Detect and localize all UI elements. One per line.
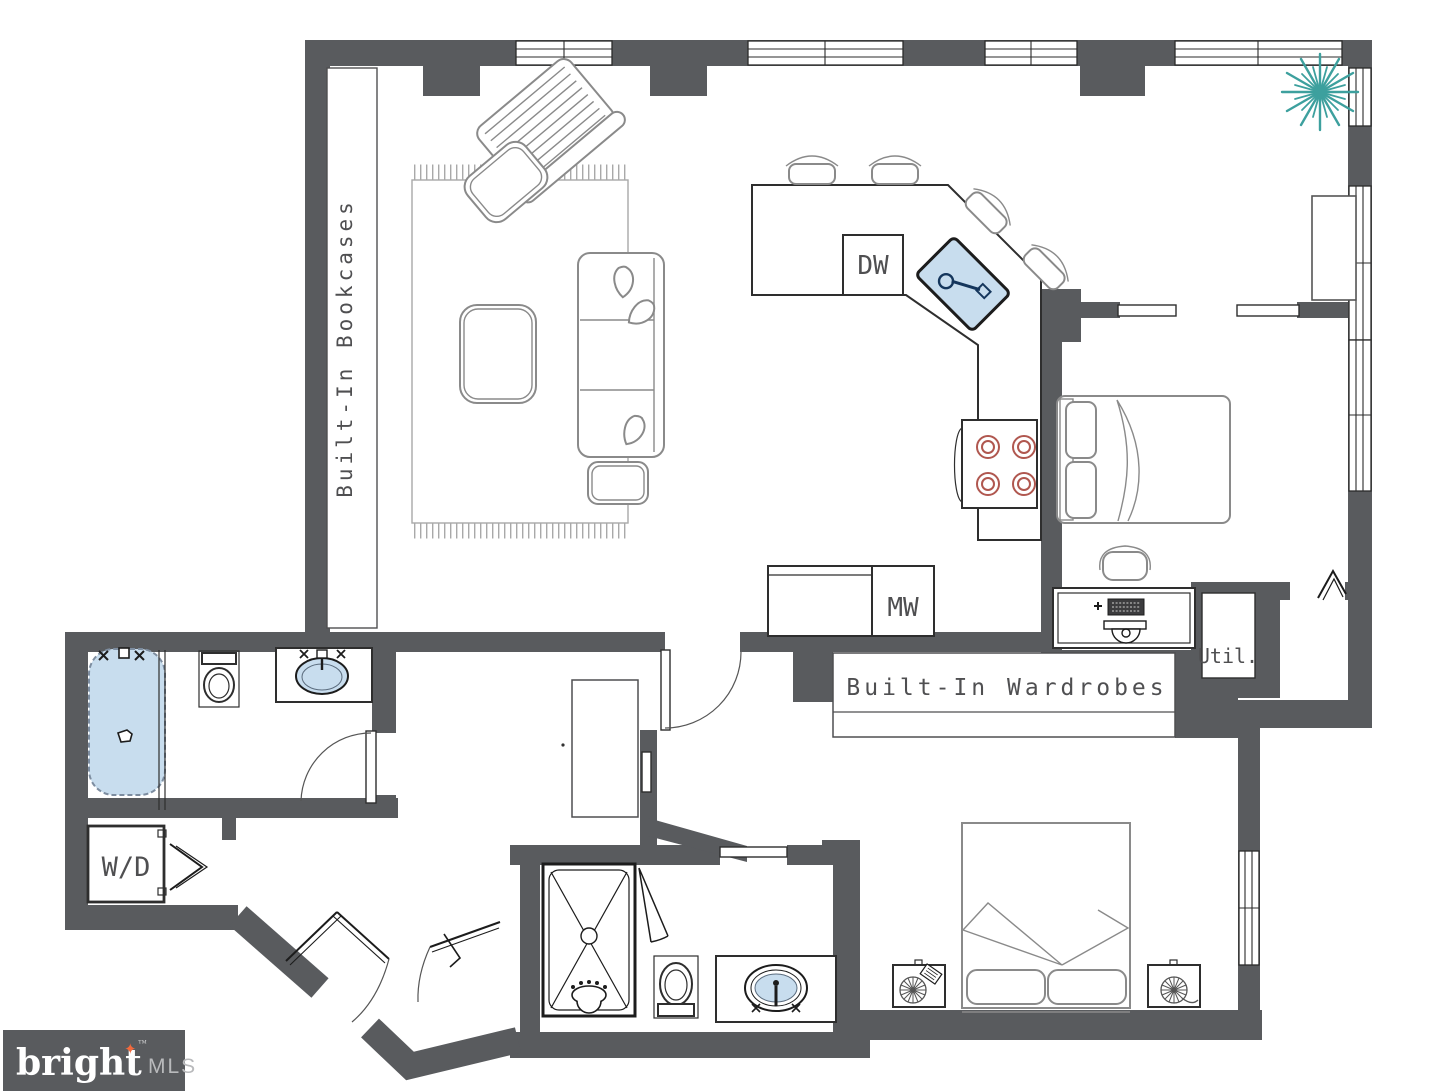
vanity-sink-1 — [276, 648, 372, 702]
pantry-cabinet — [1312, 196, 1356, 300]
master-bathroom: W/D — [88, 648, 376, 902]
toilet-1 — [199, 651, 239, 707]
window-top-2 — [748, 41, 903, 65]
bar-stool — [869, 156, 921, 184]
built-in-wardrobes: Built-In Wardrobes — [833, 653, 1175, 737]
dishwasher-label: DW — [857, 251, 889, 281]
logo-trademark: ™ — [138, 1038, 147, 1048]
microwave: MW — [872, 566, 934, 636]
washer-dryer: W/D — [88, 826, 166, 902]
dot-marker — [561, 743, 564, 746]
coffee-table — [460, 305, 536, 403]
floor-plan-page: Built-In Bookcases — [0, 0, 1440, 1091]
toilet-2 — [654, 956, 698, 1018]
living-room: Built-In Bookcases — [327, 51, 664, 628]
pocket-door-leaf — [642, 752, 651, 792]
washer-dryer-label: W/D — [102, 852, 151, 883]
shower — [543, 864, 635, 1016]
floor-plan-drawing: Built-In Bookcases — [0, 0, 1440, 1091]
bathroom-2 — [543, 847, 836, 1022]
window-top-4 — [1175, 41, 1342, 65]
door-vestibule — [418, 922, 500, 1002]
logo-star-icon: ✦ — [124, 1042, 137, 1058]
bed-1 — [1057, 396, 1230, 523]
entry-closet — [572, 680, 638, 817]
brightmls-logo: bright ✦ ™ MLS — [3, 1030, 197, 1091]
bedroom-2 — [893, 823, 1200, 1012]
nightstand-left — [893, 960, 945, 1007]
door-hall-living — [661, 650, 741, 730]
logo-suffix-text: MLS — [148, 1055, 197, 1078]
window-bedroom2 — [1239, 851, 1259, 965]
bifold-door-wd — [170, 844, 207, 890]
bar-stool — [786, 156, 838, 184]
vanity-sink-2 — [716, 956, 836, 1022]
bathtub — [89, 648, 165, 795]
desk — [1053, 546, 1195, 648]
bookcases-label: Built-In Bookcases — [333, 198, 357, 498]
window-top-3 — [985, 41, 1077, 65]
desk-chair — [1100, 546, 1151, 580]
stove — [955, 420, 1038, 508]
bed-2 — [962, 823, 1130, 1012]
window-right-3 — [1349, 340, 1371, 491]
door-master-bath — [301, 731, 376, 803]
microwave-label: MW — [887, 593, 919, 623]
utility-label: Util. — [1198, 644, 1258, 668]
pocket-door-bedroom2 — [720, 847, 787, 857]
sliding-door-leaf — [1118, 305, 1176, 316]
bifold-door-bedroom1 — [1318, 571, 1346, 600]
sliding-door-leaf — [1237, 305, 1299, 316]
side-table — [588, 462, 648, 504]
walls — [65, 40, 1372, 1066]
nightstand-right — [1148, 960, 1200, 1007]
wardrobes-label: Built-In Wardrobes — [846, 675, 1167, 701]
sofa — [578, 253, 664, 457]
shower-door — [639, 868, 668, 942]
utility-closet: Util. — [1198, 593, 1258, 678]
kitchen-counter — [768, 566, 872, 636]
window-right-1 — [1349, 68, 1371, 126]
